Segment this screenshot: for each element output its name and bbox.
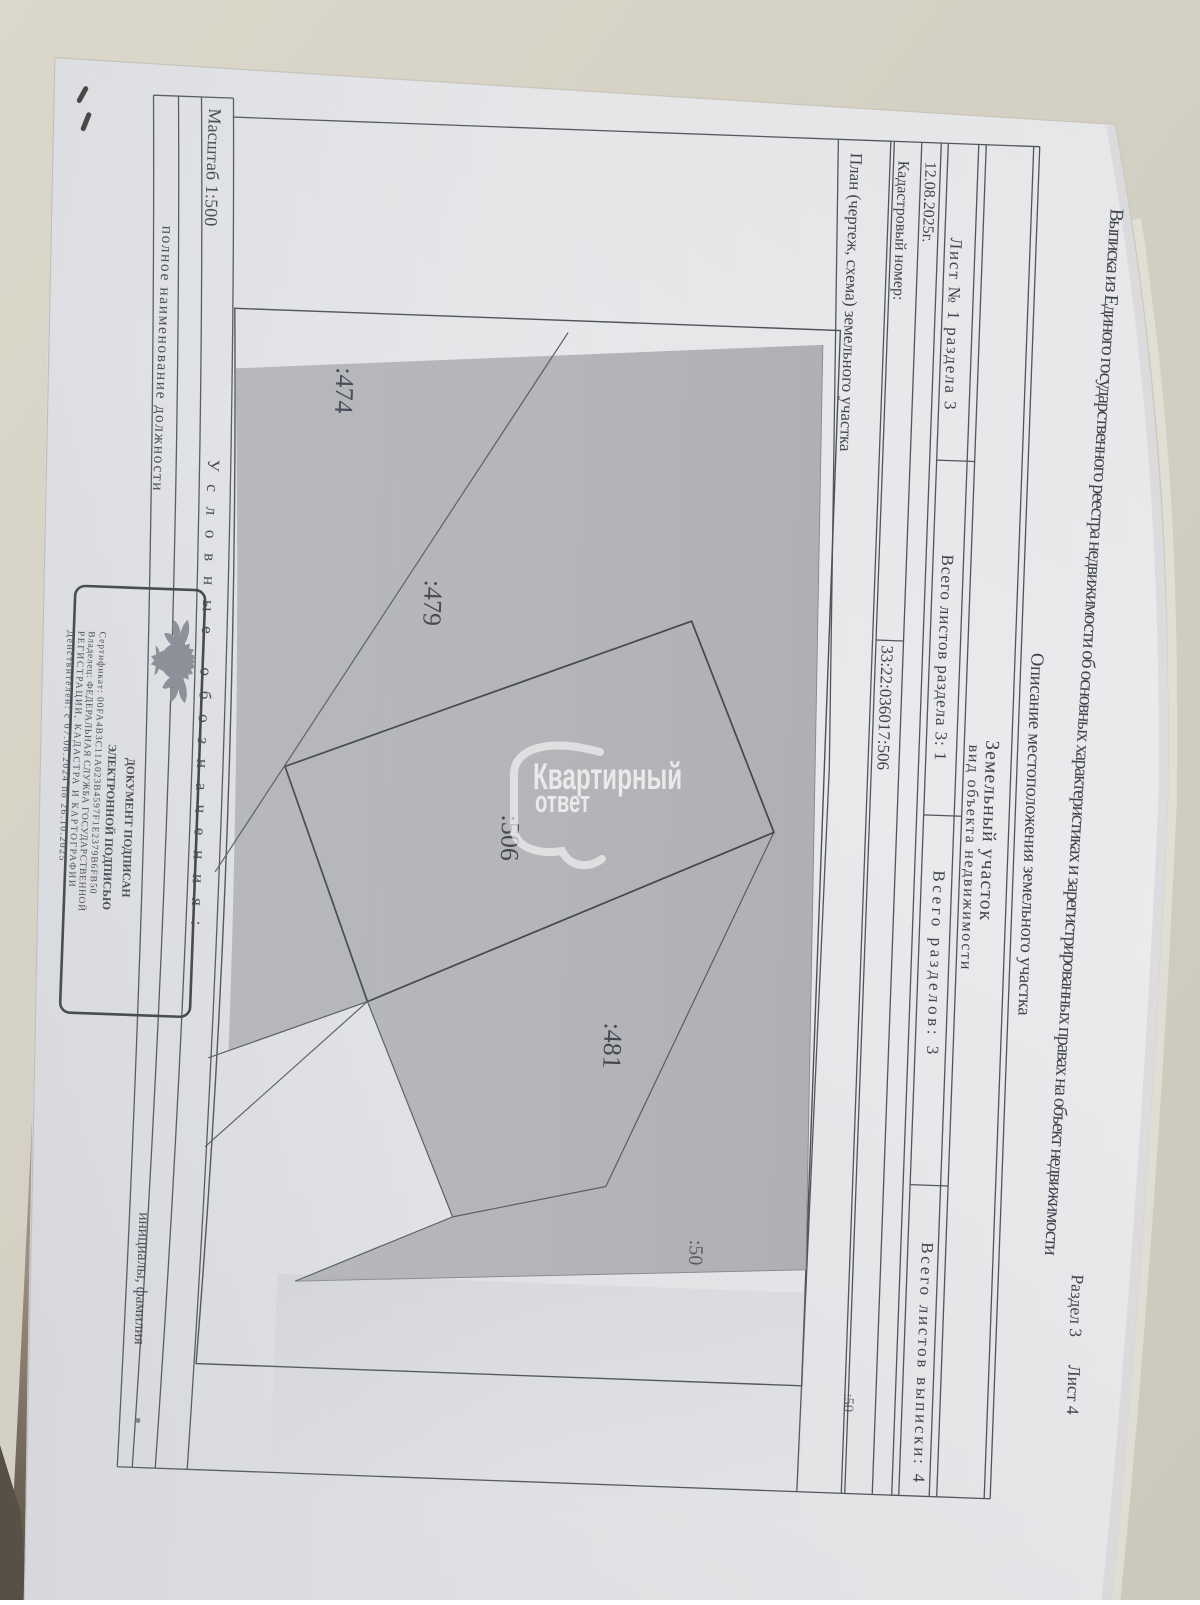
svg-text:ответ: ответ xyxy=(535,784,590,819)
